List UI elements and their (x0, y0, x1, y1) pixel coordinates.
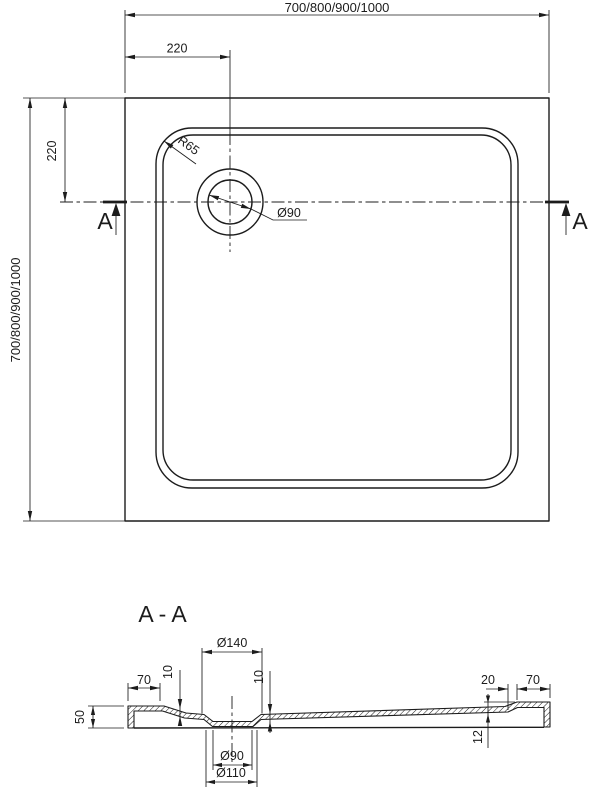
section-marker-right: A (562, 203, 589, 235)
dim-step-width-label: 20 (481, 673, 495, 687)
dim-width-top-label: 700/800/900/1000 (285, 0, 390, 15)
extension-lines (23, 10, 549, 521)
dim-width-top: 700/800/900/1000 (125, 0, 549, 17)
dim-recess-depth-label: 10 (252, 670, 266, 684)
dim-tray-height-label: 50 (73, 710, 87, 724)
skirt-bottom-line (134, 727, 544, 728)
dim-left-flange: 70 (128, 673, 160, 701)
dim-rim-radius: R65 (164, 133, 202, 164)
tray-rim-outer (156, 128, 518, 488)
dim-drain-diameter-label: Ø90 (277, 206, 301, 220)
dim-edge-thickness-label: 12 (471, 730, 485, 744)
dim-rim-radius-label: R65 (175, 133, 202, 158)
section-letter-right: A (572, 208, 588, 234)
section-marker-left: A (97, 203, 120, 235)
dim-drain-offset-x-label: 220 (167, 42, 188, 56)
section-arrow-icon (562, 203, 571, 216)
section-title: A-A (138, 601, 191, 627)
dim-rim-drop-label: 10 (161, 665, 175, 679)
dim-rim-drop: 10 (161, 665, 182, 726)
dim-height-left-label: 700/800/900/1000 (8, 258, 23, 363)
dim-drain-hole-label: Ø90 (220, 749, 244, 763)
section-arrow-icon (112, 203, 121, 216)
dim-drain-offset-x: 220 (125, 42, 230, 60)
dim-height-left: 700/800/900/1000 (8, 98, 32, 521)
dim-tray-height: 50 (73, 706, 124, 728)
dim-drain-diameter: Ø90 (209, 195, 307, 220)
dim-edge-thickness: 12 (471, 694, 515, 748)
dim-drain-offset-y: 220 (45, 98, 67, 202)
dim-drain-offset-y-label: 220 (45, 141, 59, 162)
dim-recess-top-diameter-label: Ø140 (217, 636, 248, 650)
dim-right-flange-label: 70 (526, 673, 540, 687)
section-letter-left: A (97, 208, 113, 234)
tray-outer-outline (125, 98, 549, 521)
tray-rim-inner (163, 135, 511, 480)
technical-drawing-shower-tray: A A 700/800/900/1000 220 700/8 (0, 0, 609, 792)
drawing-svg: A A 700/800/900/1000 220 700/8 (0, 0, 609, 792)
dim-drain-hole: Ø90 (213, 730, 252, 770)
tray-section-profile (128, 702, 550, 728)
dim-left-flange-label: 70 (137, 673, 151, 687)
dim-drain-under-label: Ø110 (216, 766, 246, 780)
top-view: A A 700/800/900/1000 220 700/8 (8, 0, 588, 521)
section-view: A-A Ø140 70 10 (73, 601, 550, 787)
dim-right-flange: 70 (517, 673, 550, 698)
